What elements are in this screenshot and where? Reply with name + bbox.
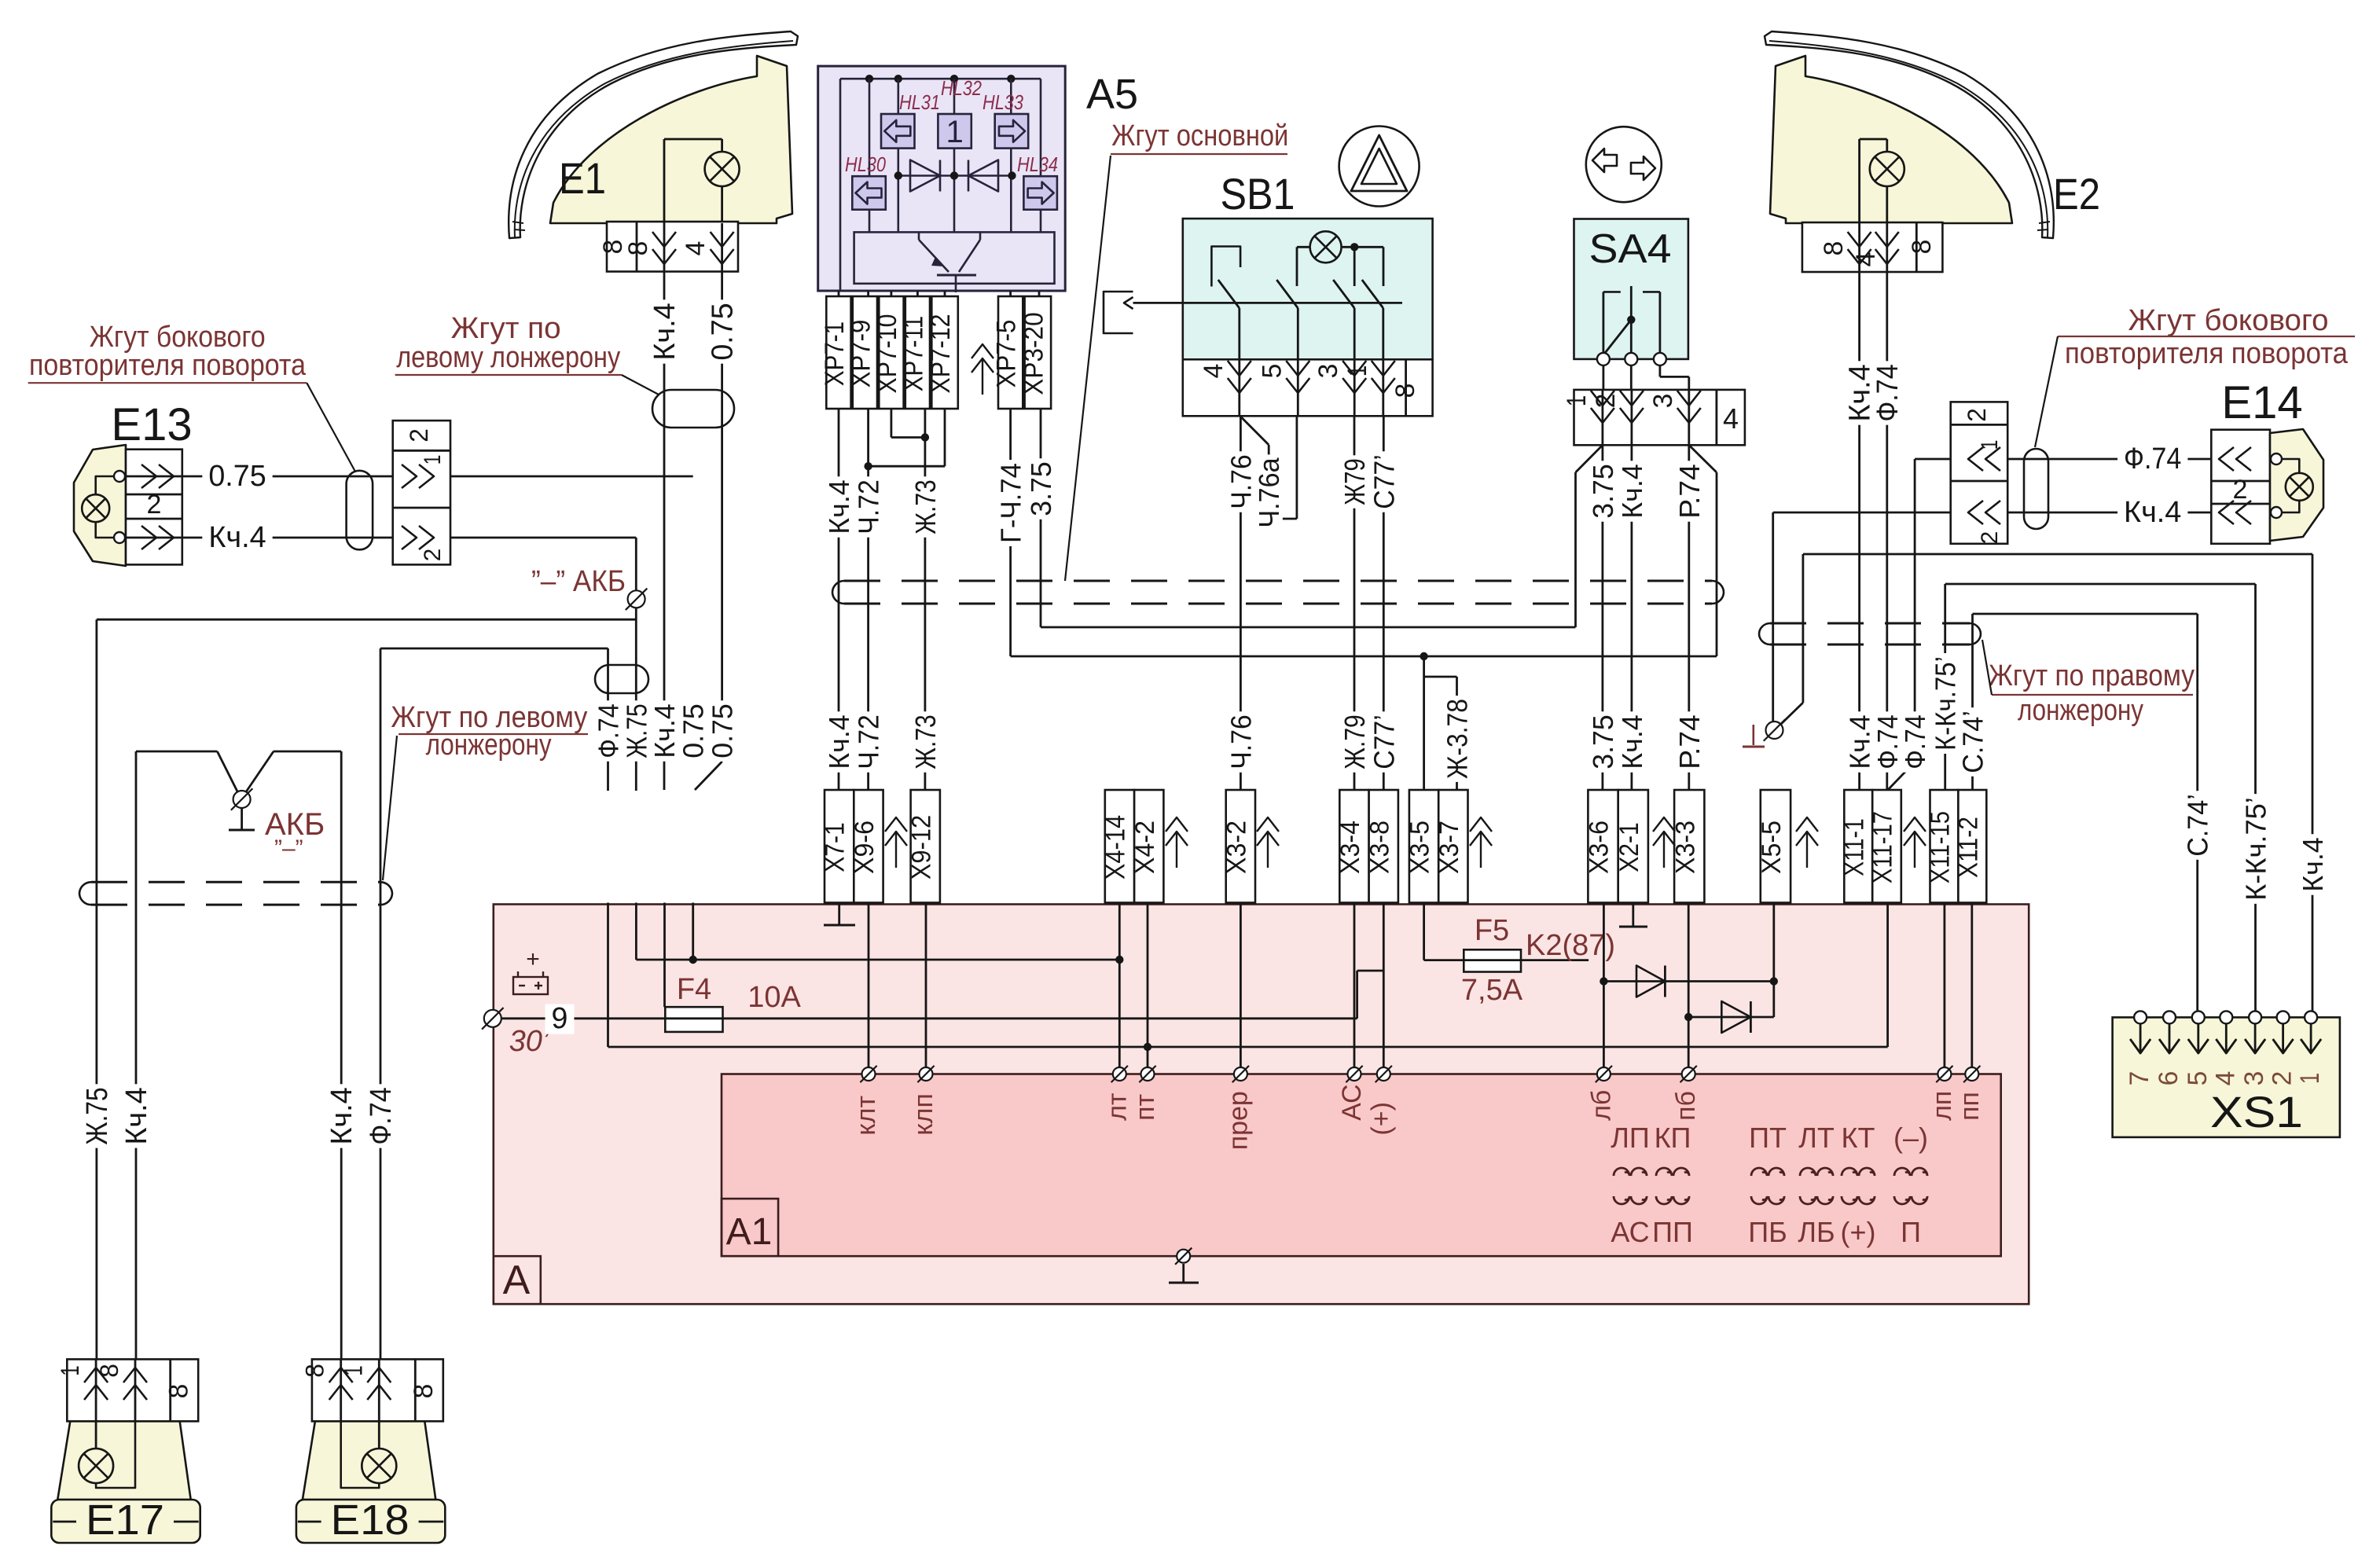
svg-text:ПБ: ПБ (1748, 1216, 1787, 1248)
svg-text:Х11-15: Х11-15 (1925, 811, 1955, 883)
svg-text:КП: КП (1655, 1122, 1691, 1154)
svg-text:(+): (+) (1841, 1216, 1876, 1248)
svg-text:ЛТ: ЛТ (1798, 1122, 1835, 1154)
svg-text:4: 4 (681, 241, 711, 256)
svg-text:Ч.76: Ч.76 (1225, 714, 1257, 769)
svg-text:Х3-6: Х3-6 (1585, 821, 1614, 874)
svg-text:Х3-7: Х3-7 (1434, 821, 1464, 874)
svg-text:Е2: Е2 (2053, 169, 2100, 218)
svg-text:клт: клт (851, 1096, 881, 1136)
svg-text:0.75: 0.75 (208, 460, 266, 493)
svg-text:Х9-6: Х9-6 (850, 821, 880, 874)
svg-text:ЛБ: ЛБ (1798, 1216, 1835, 1248)
svg-text:левому лонжерону: левому лонжерону (396, 341, 620, 374)
svg-text:ХР7-9: ХР7-9 (846, 320, 876, 388)
svg-text:Кч.4: Кч.4 (1616, 714, 1648, 769)
svg-text:ХР3-20: ХР3-20 (1019, 312, 1049, 395)
svg-text:1: 1 (1562, 395, 1592, 406)
svg-text:5: 5 (2183, 1071, 2213, 1086)
svg-text:HL33: HL33 (982, 90, 1023, 114)
svg-text:3.75: 3.75 (1587, 714, 1619, 769)
svg-text:Кч.4: Кч.4 (823, 714, 855, 769)
svg-text:С77’: С77’ (1368, 714, 1400, 769)
svg-text:5: 5 (1257, 364, 1287, 379)
svg-text:HL30: HL30 (845, 152, 886, 176)
svg-text:2: 2 (1591, 394, 1621, 409)
svg-text:С77’: С77’ (1368, 454, 1400, 509)
svg-text:Х3-5: Х3-5 (1405, 821, 1435, 874)
svg-text:2: 2 (147, 490, 162, 520)
svg-text:Кч.4: Кч.4 (208, 521, 266, 554)
svg-text:1: 1 (946, 115, 963, 149)
svg-text:Х7-1: Х7-1 (821, 822, 850, 872)
svg-text:0.75: 0.75 (707, 703, 739, 758)
svg-text:Ж.75: Ж.75 (81, 1087, 114, 1144)
svg-text:K2(87): K2(87) (1526, 929, 1615, 962)
svg-text:Х11-1: Х11-1 (1839, 818, 1869, 876)
svg-text:лп: лп (1927, 1091, 1957, 1121)
svg-text:Ч.76а: Ч.76а (1253, 457, 1285, 527)
svg-text:Ж.73: Ж.73 (909, 714, 942, 769)
svg-text:Ж.79: Ж.79 (1339, 714, 1371, 769)
svg-text:АС: АС (1337, 1084, 1367, 1120)
svg-text:ХР7-5: ХР7-5 (992, 320, 1022, 388)
svg-text:лб: лб (1586, 1090, 1616, 1121)
svg-text:XS1: XS1 (2210, 1087, 2303, 1137)
svg-text:8: 8 (409, 1384, 439, 1399)
svg-text:HL31: HL31 (899, 90, 940, 114)
svg-text:0.75: 0.75 (707, 303, 740, 360)
svg-text:лт: лт (1102, 1092, 1132, 1120)
svg-text:Ч.72: Ч.72 (853, 479, 885, 534)
svg-text:8: 8 (623, 241, 653, 256)
svg-text:Жгут основной: Жгут основной (1111, 119, 1288, 152)
svg-text:А1: А1 (726, 1211, 773, 1253)
svg-text:Ф.74: Ф.74 (1871, 364, 1904, 421)
svg-text:2: 2 (420, 549, 446, 562)
svg-text:3: 3 (1313, 364, 1343, 379)
svg-text:”–”: ”–” (274, 835, 303, 861)
svg-text:П: П (1901, 1216, 1921, 1248)
svg-text:(–): (–) (1893, 1122, 1928, 1154)
svg-text:С.74’: С.74’ (2182, 794, 2214, 857)
svg-text:2: 2 (405, 428, 433, 442)
svg-text:2: 2 (1963, 408, 1991, 422)
svg-text:1: 1 (56, 1365, 84, 1375)
svg-text:Кч.4: Кч.4 (2297, 837, 2329, 891)
svg-text:4: 4 (2210, 1071, 2240, 1086)
svg-text:А: А (503, 1258, 531, 1303)
svg-text:Х3-8: Х3-8 (1364, 821, 1394, 874)
svg-text:Х4-2: Х4-2 (1130, 821, 1160, 874)
svg-text:30’: 30’ (509, 1025, 549, 1058)
svg-text:1: 1 (420, 455, 446, 465)
svg-text:0.75: 0.75 (678, 703, 710, 758)
svg-text:Х3-3: Х3-3 (1670, 821, 1700, 874)
svg-text:F5: F5 (1475, 914, 1509, 947)
svg-text:SA4: SA4 (1589, 226, 1672, 272)
svg-text:Р.74: Р.74 (1673, 714, 1706, 769)
svg-text:Кч.4: Кч.4 (823, 479, 855, 534)
svg-text:4: 4 (1851, 252, 1881, 267)
svg-text:Ф.74: Ф.74 (1899, 714, 1931, 769)
svg-text:Х3-2: Х3-2 (1221, 821, 1251, 874)
svg-text:Е18: Е18 (331, 1496, 410, 1544)
svg-text:8: 8 (163, 1384, 193, 1399)
svg-text:3.75: 3.75 (1587, 464, 1619, 518)
svg-text:Р.74: Р.74 (1673, 464, 1706, 518)
svg-text:Кч.4: Кч.4 (325, 1087, 358, 1144)
svg-text:Кч.4: Кч.4 (120, 1087, 153, 1144)
svg-text:КТ: КТ (1842, 1122, 1875, 1154)
svg-text:+: + (526, 946, 540, 972)
svg-text:Х5-5: Х5-5 (1757, 821, 1787, 874)
svg-text:Х4-14: Х4-14 (1100, 815, 1130, 879)
svg-text:1: 1 (1977, 440, 2003, 450)
svg-text:Х11-17: Х11-17 (1868, 811, 1898, 883)
svg-text:2: 2 (2268, 1071, 2297, 1086)
svg-text:8: 8 (301, 1364, 329, 1378)
svg-text:Жгут по: Жгут по (451, 312, 561, 345)
svg-text:Кч.4: Кч.4 (2124, 496, 2181, 529)
svg-text:пп: пп (1955, 1092, 1985, 1121)
svg-text:Е1: Е1 (559, 153, 606, 203)
svg-text:Г-Ч.74: Г-Ч.74 (995, 463, 1027, 543)
svg-text:7: 7 (2125, 1071, 2154, 1086)
svg-text:клп: клп (909, 1093, 938, 1136)
svg-text:пт: пт (1130, 1094, 1160, 1121)
svg-text:К-Кч.75’: К-Кч.75’ (2240, 797, 2272, 901)
svg-text:4: 4 (1723, 402, 1739, 435)
svg-text:ХР7-12: ХР7-12 (926, 314, 956, 394)
svg-text:(+): (+) (1366, 1102, 1396, 1136)
svg-text:HL32: HL32 (941, 76, 982, 100)
svg-text:С.74’: С.74’ (1957, 711, 1989, 773)
svg-text:АС: АС (1611, 1216, 1649, 1248)
svg-text:9: 9 (552, 1002, 568, 1035)
svg-text:Е17: Е17 (86, 1496, 164, 1544)
svg-text:Е13: Е13 (111, 399, 192, 450)
svg-text:4: 4 (1199, 364, 1229, 379)
svg-text:Ф.74: Ф.74 (365, 1087, 398, 1144)
svg-text:2: 2 (1977, 531, 2003, 545)
svg-text:3.75: 3.75 (1025, 461, 1057, 516)
svg-text:Кч.4: Кч.4 (1616, 464, 1648, 518)
svg-text:прер: прер (1223, 1091, 1253, 1150)
svg-text:Е14: Е14 (2221, 377, 2302, 428)
svg-text:1: 1 (1342, 365, 1372, 376)
svg-text:Х9-12: Х9-12 (906, 815, 936, 879)
svg-text:”–” АКБ: ”–” АКБ (531, 565, 626, 598)
svg-text:HL34: HL34 (1017, 152, 1058, 176)
svg-text:лонжерону: лонжерону (2018, 694, 2143, 727)
svg-text:8: 8 (95, 1364, 123, 1378)
svg-text:8: 8 (1819, 241, 1849, 256)
svg-text:7,5А: 7,5А (1461, 974, 1523, 1007)
svg-text:Х11-2: Х11-2 (1953, 817, 1983, 878)
svg-text:Жгут по правому: Жгут по правому (1989, 659, 2195, 692)
svg-text:1: 1 (339, 1365, 367, 1375)
svg-text:F4: F4 (677, 973, 711, 1006)
svg-text:ПП: ПП (1652, 1216, 1693, 1248)
svg-text:3: 3 (1648, 394, 1678, 409)
svg-text:Ч.72: Ч.72 (853, 714, 885, 769)
svg-text:Кч.4: Кч.4 (648, 703, 681, 758)
svg-text:ПТ: ПТ (1749, 1122, 1787, 1154)
svg-text:повторителя поворота: повторителя поворота (2065, 337, 2349, 370)
svg-text:1: 1 (2295, 1073, 2325, 1084)
svg-text:ХР7-10: ХР7-10 (872, 314, 902, 394)
svg-text:Кч.4: Кч.4 (648, 303, 681, 360)
svg-text:ХР7-1: ХР7-1 (820, 321, 850, 386)
svg-text:Х3-4: Х3-4 (1335, 821, 1365, 874)
svg-text:8: 8 (1390, 384, 1420, 398)
svg-text:10А: 10А (747, 981, 801, 1014)
svg-text:SB1: SB1 (1221, 169, 1295, 218)
svg-text:Жгут бокового: Жгут бокового (2128, 304, 2329, 337)
svg-text:Ж79: Ж79 (1339, 458, 1371, 505)
svg-text:повторителя поворота: повторителя поворота (29, 349, 307, 382)
svg-text:Ж-3.78: Ж-3.78 (1442, 699, 1474, 779)
svg-text:пб: пб (1671, 1091, 1701, 1121)
svg-text:3: 3 (2239, 1071, 2269, 1086)
svg-text:6: 6 (2154, 1071, 2184, 1086)
svg-text:ЛП: ЛП (1611, 1122, 1650, 1154)
svg-text:Ж.73: Ж.73 (909, 479, 942, 534)
svg-text:А5: А5 (1086, 71, 1138, 118)
svg-text:ХР7-11: ХР7-11 (898, 316, 928, 392)
svg-text:8: 8 (1907, 240, 1937, 255)
svg-text:Ф.74: Ф.74 (2124, 442, 2181, 476)
svg-text:2: 2 (2233, 475, 2248, 505)
svg-text:Х2-1: Х2-1 (1614, 822, 1644, 872)
